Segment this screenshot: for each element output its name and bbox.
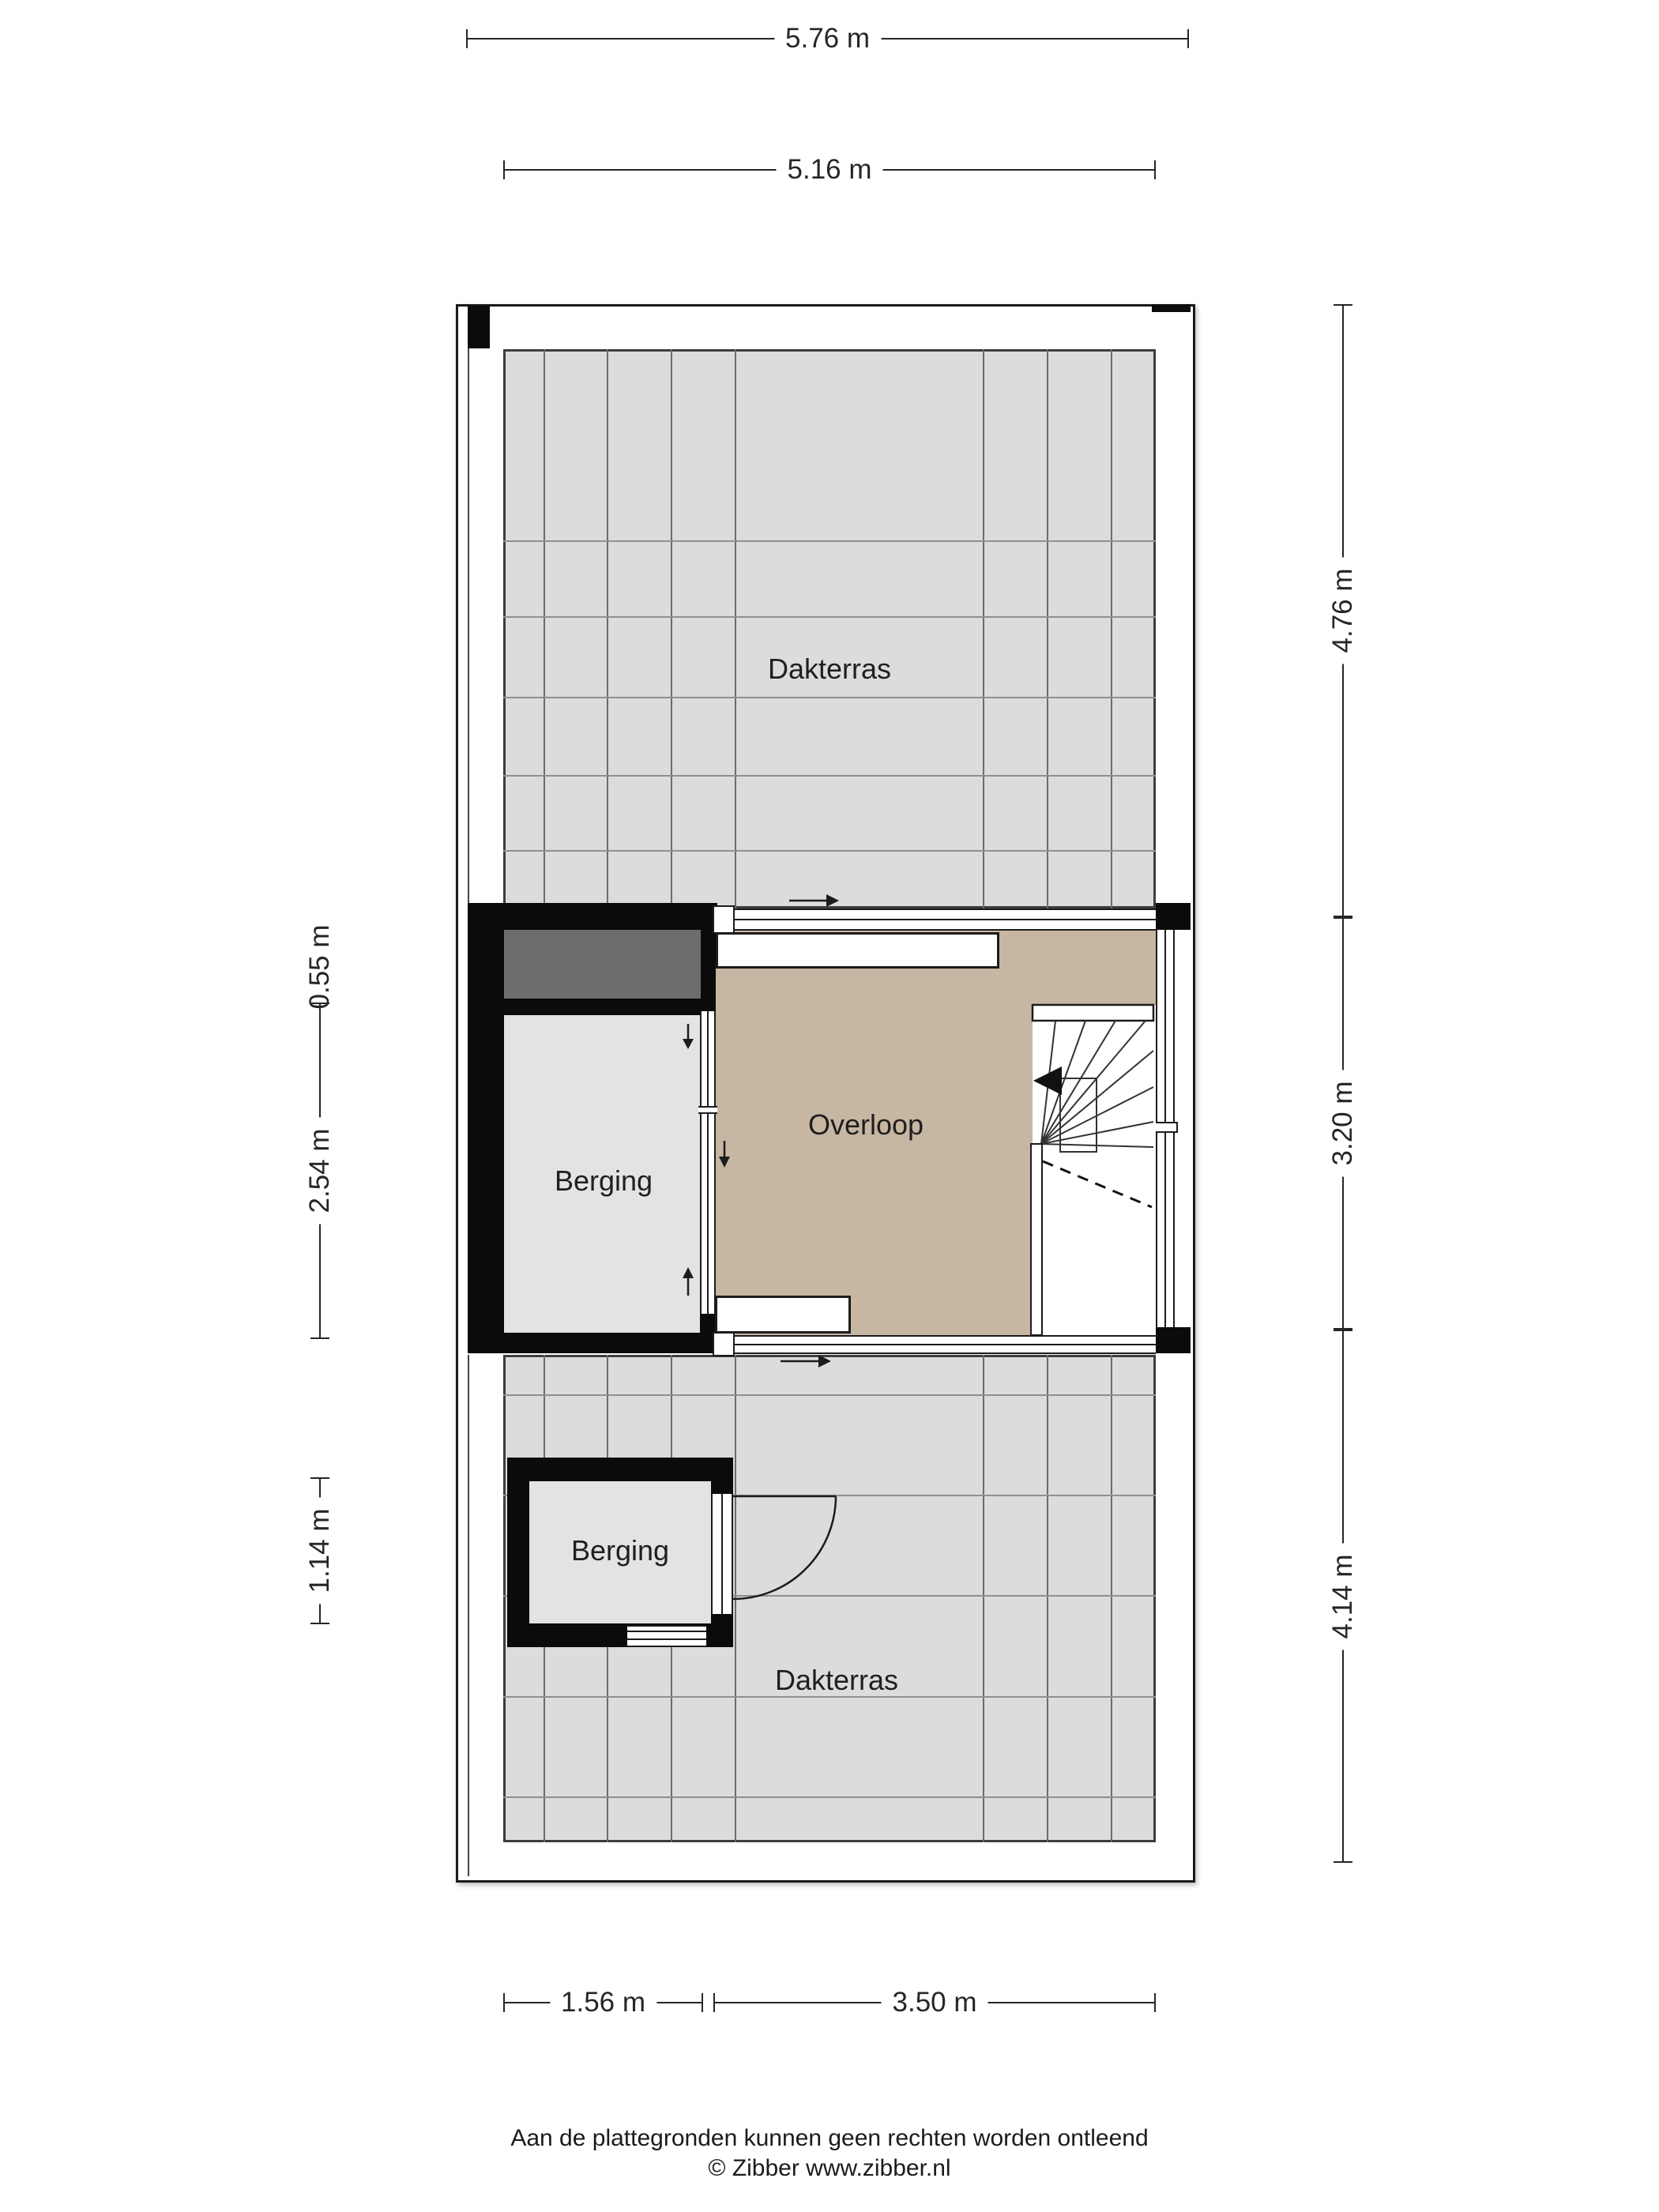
dimension-bottom-terrace-depth: 4.14 m (1329, 1330, 1357, 1863)
stair-side-wall (1031, 1144, 1042, 1335)
room-label-berging-lower: Berging (571, 1534, 669, 1567)
dimension-lower-berging-depth: 1.14 m (306, 1477, 334, 1624)
door-direction-arrow-icon-down-landing (719, 1141, 730, 1168)
room-label-dakterras-bottom: Dakterras (775, 1664, 898, 1697)
sliding-door-arrow-icon-bottom (781, 1355, 831, 1367)
sliding-door-arrow-icon-top (789, 894, 839, 907)
dimension-inner-width: 5.16 m (503, 156, 1156, 184)
dimension-lower-berging-width: 1.56 m (503, 1988, 703, 2017)
dimension-lower-terrace-width: 3.50 m (713, 1988, 1156, 2017)
room-label-berging-middle: Berging (555, 1164, 653, 1198)
door-direction-arrow-icon-up-inside (683, 1267, 694, 1296)
dimension-top-terrace-depth: 4.76 m (1329, 304, 1357, 917)
footer-disclaimer: Aan de plattegronden kunnen geen rechten… (0, 2124, 1659, 2154)
floor-plan-canvas: Dakterras Overloop Berging Berging Dakte… (0, 0, 1659, 2212)
staircase (1031, 1005, 1153, 1335)
dimension-berging-depth: 2.54 m (306, 1003, 334, 1339)
plan-symbol-overlay (0, 0, 1659, 2212)
footer: Aan de plattegronden kunnen geen rechten… (0, 2124, 1659, 2184)
stair-landing-edge (1033, 1005, 1153, 1021)
room-label-overloop: Overloop (808, 1108, 924, 1142)
footer-credit: © Zibber www.zibber.nl (0, 2154, 1659, 2184)
dimension-roof-edge-depth: 0.55 m (306, 931, 334, 1003)
door-swing-arc-icon (733, 1496, 836, 1599)
dimension-total-width: 5.76 m (466, 24, 1189, 53)
stair-cut-line (1043, 1161, 1152, 1207)
dimension-middle-depth: 3.20 m (1329, 917, 1357, 1330)
room-label-dakterras-top: Dakterras (768, 653, 891, 686)
door-direction-arrow-icon-down-inside (683, 1024, 694, 1049)
